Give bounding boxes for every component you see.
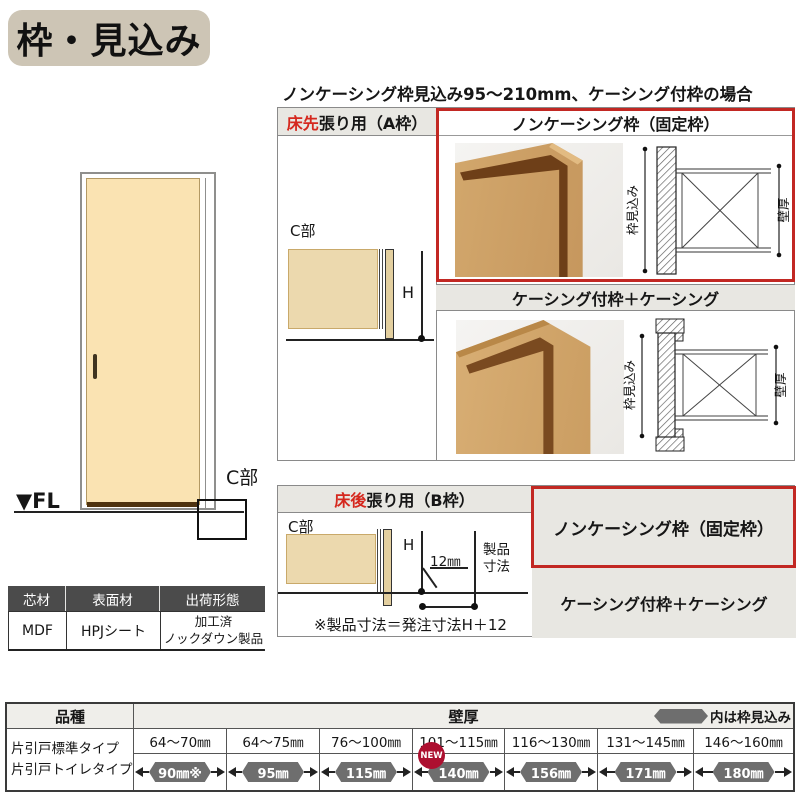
arrow-right-icon bbox=[495, 767, 503, 777]
bottom-dimension-dot bbox=[419, 603, 426, 610]
door-c-section-label: C部 bbox=[226, 463, 258, 490]
section-a-header: 床先張り用（A枠） bbox=[278, 108, 437, 136]
page-title-text: 枠・見込み bbox=[16, 12, 201, 64]
noncasing-section-diagram: 枠見込み 壁厚 bbox=[621, 139, 793, 281]
section-a-h-dimension-dot bbox=[418, 335, 425, 342]
hexagon-legend-icon bbox=[654, 709, 708, 724]
wall-range: 64～70㎜ bbox=[134, 729, 226, 754]
casing-section-diagram: 枠見込み 壁厚 bbox=[618, 314, 790, 456]
spec-header-core: 芯材 bbox=[8, 586, 66, 611]
wall-column: 64～75㎜ 95㎜ bbox=[227, 729, 320, 790]
casing-top-section bbox=[656, 319, 684, 333]
casing-cell-b: ケーシング付枠＋ケーシング bbox=[532, 568, 796, 638]
section-b-h-label: H bbox=[403, 536, 414, 554]
noncasing-highlight-box-b: ノンケーシング枠（固定枠） bbox=[531, 486, 796, 568]
floor-level-label: ▼FL bbox=[16, 489, 60, 513]
arrow-left-icon bbox=[135, 767, 143, 777]
arrow-left-icon bbox=[414, 767, 422, 777]
spec-value-surface: HPJシート bbox=[67, 612, 161, 649]
dim-12mm-leader-line bbox=[430, 567, 468, 569]
door-bottom-edge bbox=[87, 502, 199, 507]
wall-thickness-table: 品種 壁厚 内は枠見込み 片引戸標準タイプ 片引戸トイレタイプ 64～70㎜ 9… bbox=[5, 702, 795, 792]
spec-value-shipping: 加工済 ノックダウン製品 bbox=[161, 612, 266, 649]
bottom-dimension-line bbox=[422, 606, 475, 608]
material-spec-value-row: MDF HPJシート 加工済 ノックダウン製品 bbox=[8, 611, 265, 651]
frame-depth-cell: 156㎜ bbox=[505, 754, 597, 790]
material-spec-header-row: 芯材 表面材 出荷形態 bbox=[8, 586, 265, 611]
wall-column: 64～70㎜ 90㎜※ bbox=[134, 729, 227, 790]
kind-cell: 片引戸標準タイプ 片引戸トイレタイプ bbox=[7, 729, 134, 790]
frame-depth-cell: 90㎜※ bbox=[134, 754, 226, 790]
section-a-frame-strip bbox=[385, 249, 394, 339]
arrow-left-icon bbox=[599, 767, 607, 777]
door-c-section-box bbox=[197, 499, 247, 540]
casing-header: ケーシング付枠＋ケーシング bbox=[436, 284, 795, 311]
wall-table-body: 片引戸標準タイプ 片引戸トイレタイプ 64～70㎜ 90㎜※ 64～75㎜ 95… bbox=[7, 729, 793, 790]
frame-depth-badge: 90㎜※ bbox=[149, 762, 211, 782]
frame-depth-badge: 95㎜ bbox=[242, 762, 304, 782]
wall-column: 116～130㎜ 156㎜ bbox=[505, 729, 598, 790]
wall-column: 131～145㎜ 171㎜ bbox=[598, 729, 694, 790]
arrow-right-icon bbox=[684, 767, 692, 777]
section-b-door-section bbox=[286, 534, 376, 584]
arrow-right-icon bbox=[403, 767, 411, 777]
wall-thickness-column-header: 壁厚 内は枠見込み bbox=[134, 704, 793, 728]
arrow-left-icon bbox=[321, 767, 329, 777]
product-dimension-line bbox=[474, 531, 476, 608]
dim-12mm-leader-slant bbox=[423, 567, 438, 588]
section-b-door-edge-line bbox=[380, 529, 381, 593]
section-b-h-dimension-line bbox=[421, 531, 423, 592]
door-frame-inner-line bbox=[205, 178, 206, 508]
section-b-header-emphasis: 床後 bbox=[334, 487, 366, 511]
wall-thickness-dimension-label: 壁厚 bbox=[773, 372, 788, 397]
section-a-frame: 床先張り用（A枠） C部 H ノンケーシング枠（固定枠） bbox=[277, 107, 795, 461]
frame-depth-dimension-label: 枠見込み bbox=[622, 360, 637, 410]
arrow-right-icon bbox=[784, 767, 792, 777]
section-b-frame-strip bbox=[383, 529, 392, 606]
frame-depth-badge: 180㎜ bbox=[713, 762, 775, 782]
wall-range: 146～160㎜ bbox=[694, 729, 793, 754]
arrow-right-icon bbox=[310, 767, 318, 777]
door-panel bbox=[86, 178, 200, 505]
wall-range: 116～130㎜ bbox=[505, 729, 597, 754]
frame-depth-cell: 171㎜ bbox=[598, 754, 693, 790]
frame-hatched-section bbox=[658, 333, 675, 437]
section-a-door-section bbox=[288, 249, 378, 329]
product-dimension-label: 製品 寸法 bbox=[483, 542, 510, 576]
frame-depth-dimension-label: 枠見込み bbox=[625, 185, 640, 235]
wall-range: 131～145㎜ bbox=[598, 729, 693, 754]
section-b-h-dimension-dot bbox=[418, 588, 425, 595]
arrow-left-icon bbox=[695, 767, 703, 777]
subtitle: ノンケーシング枠見込み95～210mm、ケーシング付枠の場合 bbox=[282, 81, 753, 105]
section-a-floor-line bbox=[286, 339, 434, 341]
section-b-door-edge-line bbox=[377, 529, 378, 593]
section-b-header: 床後張り用（B枠） bbox=[278, 486, 532, 513]
arrow-left-icon bbox=[228, 767, 236, 777]
section-a-c-label: C部 bbox=[290, 220, 315, 241]
page-title: 枠・見込み bbox=[8, 10, 210, 66]
spec-header-surface: 表面材 bbox=[66, 586, 160, 611]
wall-range: 76～100㎜ bbox=[320, 729, 412, 754]
legend: 内は枠見込み bbox=[654, 704, 791, 728]
frame-depth-cell: 115㎜ bbox=[320, 754, 412, 790]
arrow-right-icon bbox=[217, 767, 225, 777]
door-handle bbox=[93, 354, 97, 379]
wall-column: 146～160㎜ 180㎜ bbox=[694, 729, 793, 790]
casing-frame-photo bbox=[456, 320, 624, 454]
wall-table-header-row: 品種 壁厚 内は枠見込み bbox=[7, 704, 793, 729]
section-a-header-emphasis: 床先 bbox=[287, 110, 319, 134]
section-a-door-edge-line bbox=[379, 249, 380, 329]
section-a-h-label: H bbox=[402, 283, 414, 302]
new-badge: NEW bbox=[418, 742, 445, 769]
frame-hatched-section bbox=[657, 147, 676, 274]
kind-column-header: 品種 bbox=[7, 704, 134, 728]
spec-value-core: MDF bbox=[9, 612, 67, 649]
section-b-header-rest: 張り用（B枠） bbox=[366, 487, 474, 511]
section-b-floor-line bbox=[278, 592, 528, 594]
material-spec-table: 芯材 表面材 出荷形態 MDF HPJシート 加工済 ノックダウン製品 bbox=[8, 586, 265, 651]
bottom-dimension-dot bbox=[471, 603, 478, 610]
frame-depth-cell: 95㎜ bbox=[227, 754, 319, 790]
section-a-door-edge-line bbox=[382, 249, 383, 329]
section-a-header-rest: 張り用（A枠） bbox=[319, 110, 427, 134]
wall-column: 76～100㎜ 115㎜ bbox=[320, 729, 413, 790]
kind-line-toilet: 片引戸トイレタイプ bbox=[11, 760, 133, 781]
spec-header-shipping: 出荷形態 bbox=[160, 586, 265, 611]
frame-depth-badge: 156㎜ bbox=[520, 762, 582, 782]
arrow-left-icon bbox=[506, 767, 514, 777]
arrow-right-icon bbox=[588, 767, 596, 777]
section-b-frame: 床後張り用（B枠） C部 H 12㎜ 製品 寸法 ※製品寸法＝発注寸法H＋12 … bbox=[277, 485, 795, 637]
wall-range: 64～75㎜ bbox=[227, 729, 319, 754]
wall-thickness-dimension-label: 壁厚 bbox=[776, 197, 791, 222]
noncasing-frame-photo bbox=[455, 143, 623, 277]
frame-depth-cell: 180㎜ bbox=[694, 754, 793, 790]
casing-bottom-section bbox=[656, 437, 684, 451]
kind-line-standard: 片引戸標準タイプ bbox=[11, 739, 133, 760]
frame-depth-badge: 171㎜ bbox=[615, 762, 677, 782]
section-a-h-dimension-line bbox=[421, 251, 423, 339]
legend-label: 内は枠見込み bbox=[710, 706, 791, 726]
frame-depth-badge: 115㎜ bbox=[335, 762, 397, 782]
noncasing-header: ノンケーシング枠（固定枠） bbox=[439, 111, 792, 136]
catalog-page: 枠・見込み ノンケーシング枠見込み95～210mm、ケーシング付枠の場合 ▼FL… bbox=[0, 0, 800, 800]
noncasing-highlight-box: ノンケーシング枠（固定枠） 枠見込み bbox=[436, 108, 795, 282]
product-dimension-note: ※製品寸法＝発注寸法H＋12 bbox=[314, 614, 507, 635]
